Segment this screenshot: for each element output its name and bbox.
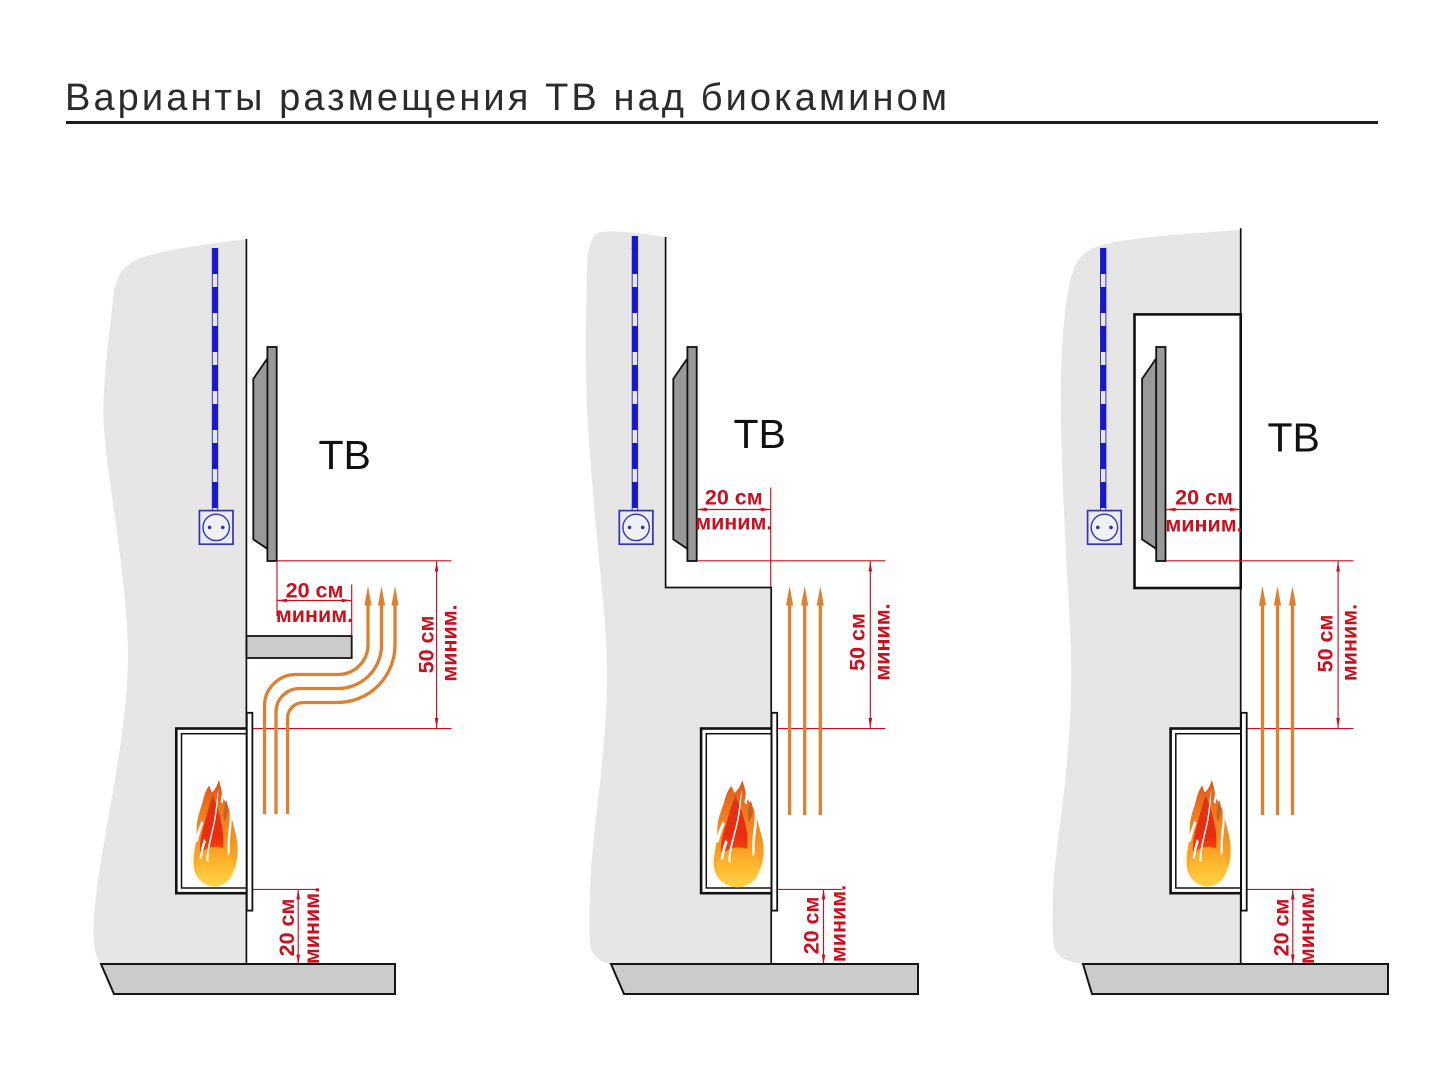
svg-text:ТВ: ТВ	[1267, 415, 1319, 461]
svg-text:миним.: миним.	[437, 604, 461, 681]
svg-text:20 см: 20 см	[286, 578, 344, 602]
svg-text:20 см: 20 см	[1175, 485, 1233, 509]
svg-text:миним.: миним.	[826, 885, 850, 962]
svg-text:миним.: миним.	[1338, 604, 1362, 681]
svg-text:ТВ: ТВ	[318, 432, 370, 478]
svg-text:миним.: миним.	[1165, 512, 1242, 536]
svg-text:миним.: миним.	[870, 603, 894, 680]
svg-text:20 см: 20 см	[1270, 899, 1294, 957]
svg-text:50 см: 50 см	[1314, 615, 1338, 673]
svg-text:50 см: 50 см	[415, 616, 439, 674]
svg-text:20 см: 20 см	[705, 485, 763, 509]
svg-text:50 см: 50 см	[846, 613, 870, 671]
svg-text:20 см: 20 см	[800, 897, 824, 955]
svg-text:миним.: миним.	[695, 511, 772, 535]
svg-text:миним.: миним.	[276, 603, 353, 627]
svg-text:миним.: миним.	[300, 887, 324, 964]
svg-text:Варианты размещения ТВ над био: Варианты размещения ТВ над биокамином	[65, 77, 950, 119]
svg-text:20 см: 20 см	[275, 899, 299, 957]
svg-text:миним.: миним.	[1295, 887, 1319, 964]
svg-text:ТВ: ТВ	[733, 411, 785, 457]
